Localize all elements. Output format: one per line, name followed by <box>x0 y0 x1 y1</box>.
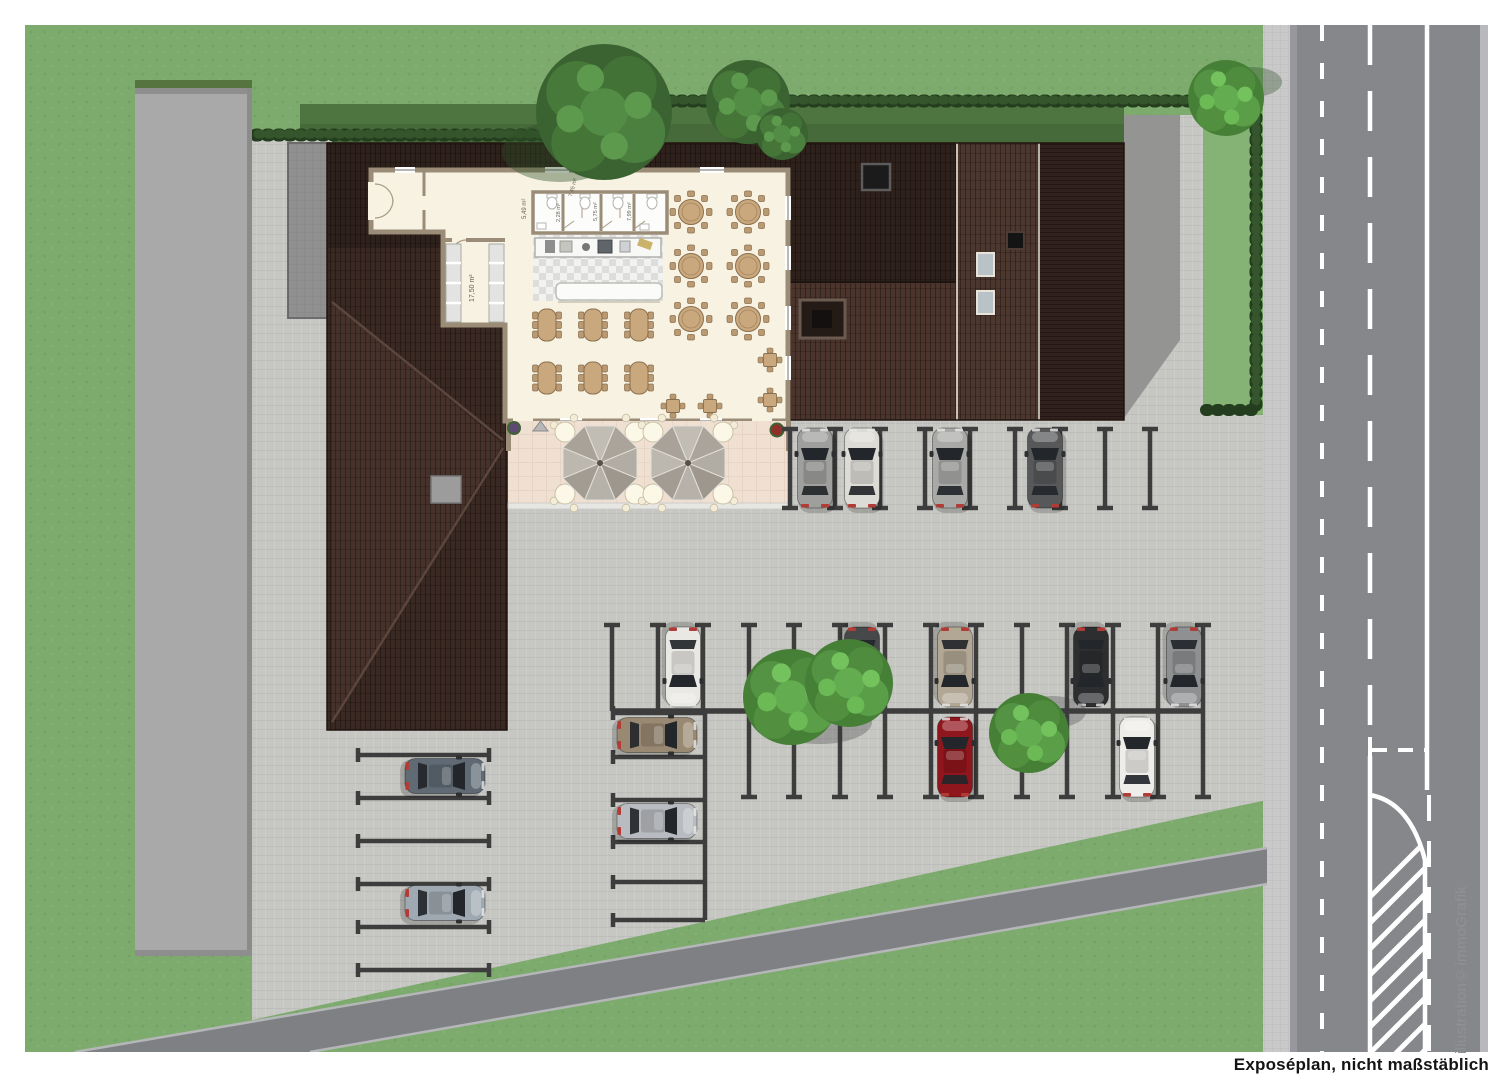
area-label-wc-vestibule: 5,49 m² <box>522 199 528 219</box>
roof-vent <box>431 476 461 503</box>
big-tree-north <box>536 44 672 180</box>
car-5 <box>662 622 704 707</box>
car-10 <box>935 717 977 802</box>
appliance-4 <box>598 240 612 253</box>
car-13 <box>400 883 485 925</box>
left-building <box>135 80 252 956</box>
margin-right <box>1488 0 1500 1084</box>
appliance-1 <box>545 240 555 253</box>
skylight-1 <box>977 253 994 276</box>
margin-left <box>0 0 25 1084</box>
car-3 <box>930 428 972 513</box>
left-building-edge-bottom <box>135 950 252 956</box>
car-1 <box>795 428 837 513</box>
terrace <box>506 414 791 512</box>
far-curb <box>1480 25 1488 1052</box>
bar-island <box>556 283 662 300</box>
tree-north-middle-small <box>756 108 808 160</box>
wc-block <box>533 192 667 233</box>
left-building-edge-right <box>247 88 252 956</box>
roof-middle-texture <box>958 143 1038 420</box>
watermark: illustration©immoGrafik <box>1453 849 1475 1054</box>
kitchen-bar <box>533 235 663 302</box>
chimney-1 <box>862 164 890 190</box>
appliance-3 <box>582 243 590 251</box>
planter-right <box>771 424 784 437</box>
car-12 <box>400 756 485 798</box>
appliance-2 <box>560 241 572 252</box>
area-label-wc-3: 7,99 m² <box>627 202 633 221</box>
car-14 <box>612 715 697 757</box>
margin-top <box>0 0 1500 25</box>
sidewalk-texture <box>1263 25 1290 1052</box>
parking-tree-2 <box>805 639 893 727</box>
left-building-edge-top <box>135 88 252 94</box>
umbrella-east <box>638 414 738 512</box>
car-15 <box>612 801 697 843</box>
umbrella-west <box>550 414 650 512</box>
car-2 <box>842 428 884 513</box>
left-building-roof <box>135 88 252 956</box>
curb <box>1290 25 1297 1052</box>
car-11 <box>1117 717 1159 802</box>
car-8 <box>1070 622 1112 707</box>
car-7 <box>934 622 976 707</box>
caption: Exposéplan, nicht maßstäblich <box>1234 1055 1489 1075</box>
parking-tree-3 <box>989 693 1069 773</box>
area-label-wc-1: 2,28 m² <box>556 203 562 222</box>
car-9 <box>1163 622 1205 707</box>
car-4 <box>1025 428 1067 513</box>
site-plan-page: 17,50 m² 5,49 m² 2,28 m² 5,75 m² 7,99 m²… <box>0 0 1500 1084</box>
chimney-2-flue <box>812 310 832 328</box>
roof-right-texture <box>1040 143 1124 420</box>
site-plan-illustration: 17,50 m² 5,49 m² 2,28 m² 5,75 m² 7,99 m²… <box>0 0 1500 1084</box>
area-label-wc-2: 5,75 m² <box>593 202 599 221</box>
door-gap-vestibule <box>422 196 427 210</box>
skylight-2 <box>977 291 994 314</box>
planter-left <box>508 422 520 434</box>
chimney-3 <box>1007 232 1024 249</box>
tree-north-east <box>1188 60 1264 136</box>
garden-wall-texture <box>288 143 330 318</box>
appliance-5 <box>620 241 630 252</box>
area-label-corridor: 17,50 m² <box>469 274 476 302</box>
